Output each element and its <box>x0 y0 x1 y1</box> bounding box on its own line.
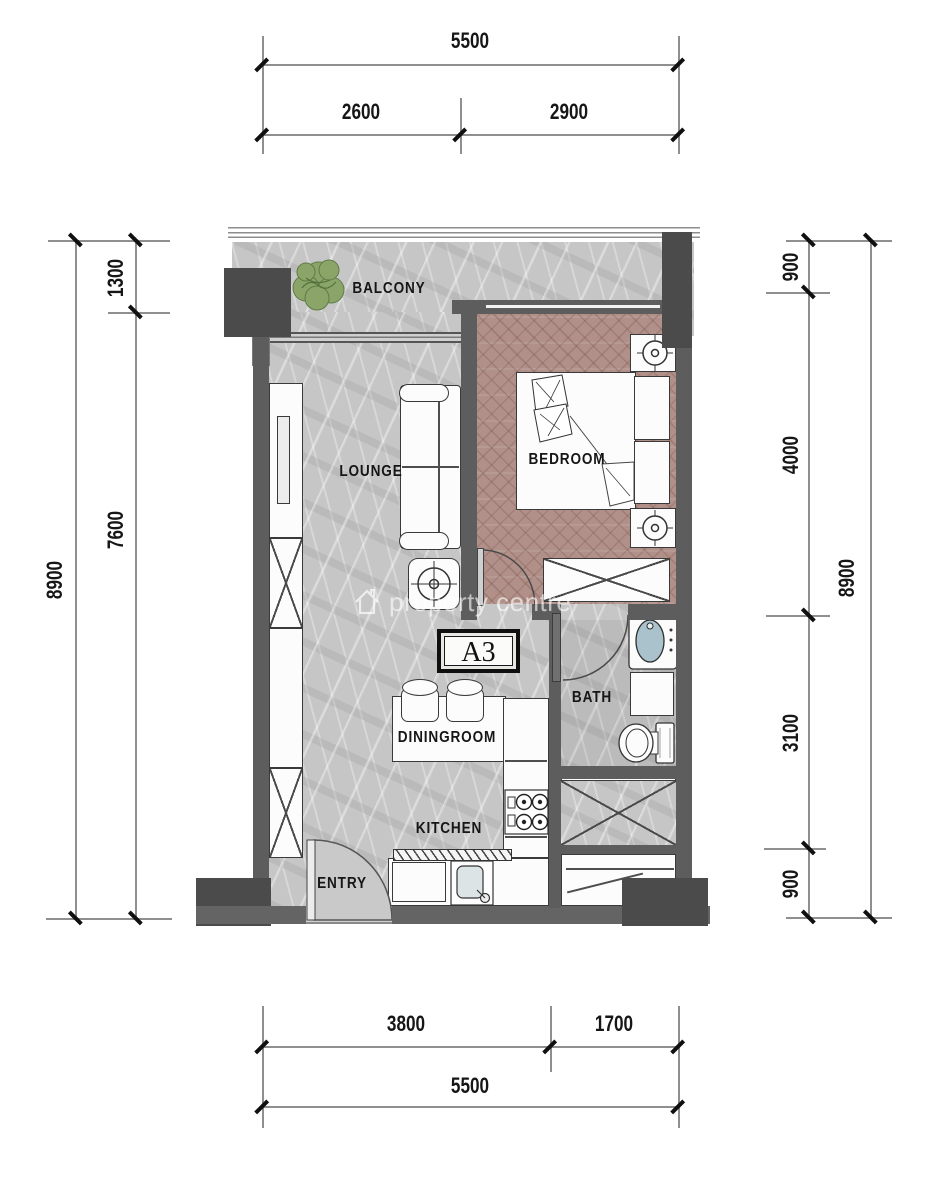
balcony-railing <box>228 227 700 241</box>
wall <box>549 845 676 854</box>
window-line <box>486 305 660 308</box>
dim-label-right-seg4: 900 <box>778 845 800 923</box>
dim-label-right-seg2: 4000 <box>778 416 800 494</box>
floor-plan-canvas: 5500 2600 2900 3800 1700 5500 8900 1300 … <box>0 0 940 1200</box>
dim-extension-line <box>786 240 892 242</box>
bed-linen-art <box>516 372 636 510</box>
house-icon <box>352 586 382 618</box>
room-label-kitchen: KITCHEN <box>373 820 526 838</box>
room-label-entry: ENTRY <box>266 875 419 893</box>
dim-extension-line <box>262 1006 264 1128</box>
dim-label-bottom-total: 5500 <box>431 1073 509 1095</box>
dim-label-right-total: 8900 <box>834 539 856 617</box>
dim-label-right-seg3: 3100 <box>778 694 800 772</box>
dim-extension-line <box>550 1006 552 1072</box>
kitchen-sink <box>450 860 494 906</box>
sliding-door-track <box>566 868 674 870</box>
dim-line-bottom-total <box>262 1106 678 1108</box>
room-label-bath: BATH <box>516 689 669 707</box>
dim-label-right-seg1: 900 <box>778 228 800 306</box>
storage-cabinet <box>269 628 303 768</box>
tv-screen <box>277 416 290 504</box>
dim-extension-line <box>678 1006 680 1128</box>
watermark-text: property centre <box>389 587 571 618</box>
dim-line-left-total <box>75 240 77 918</box>
wall <box>253 337 269 882</box>
sofa-armrest <box>399 384 449 402</box>
counter-divider <box>505 760 547 762</box>
column <box>224 268 291 337</box>
dim-label-top-seg1: 2600 <box>322 99 400 121</box>
storage-cabinet <box>269 768 303 858</box>
dim-label-bottom-seg1: 3800 <box>367 1011 445 1033</box>
balcony-sliding-door <box>266 332 462 343</box>
dim-label-left-total: 8900 <box>42 541 64 619</box>
unit-label: A3 <box>444 636 513 666</box>
wall <box>549 766 676 779</box>
bath-door-leaf <box>552 613 561 682</box>
dish-rack <box>393 849 512 861</box>
column <box>662 232 692 348</box>
dim-label-left-seg2: 7600 <box>103 491 125 569</box>
room-label-bedroom: BEDROOM <box>491 451 644 469</box>
room-label-dining: DININGROOM <box>371 729 524 747</box>
storage-area-hatch <box>561 781 676 845</box>
wall <box>461 302 477 620</box>
dim-extension-line <box>786 917 892 919</box>
dining-stool <box>401 688 439 722</box>
dim-line-right-total <box>870 240 872 917</box>
dim-line-top-segments <box>262 134 678 136</box>
watermark: property centre <box>352 586 571 618</box>
dim-extension-line <box>460 98 462 154</box>
pillow <box>634 376 670 440</box>
wall <box>628 604 676 620</box>
dim-extension-line <box>46 918 172 920</box>
toilet <box>616 720 678 766</box>
column <box>622 878 708 926</box>
wall <box>676 300 692 884</box>
dim-label-top-seg2: 2900 <box>530 99 608 121</box>
unit-badge: A3 <box>437 629 520 673</box>
ceiling-lamp-symbol <box>637 510 673 546</box>
storage-cabinet <box>269 538 303 628</box>
sofa-armrest <box>399 532 449 550</box>
dim-label-left-seg1: 1300 <box>103 239 125 317</box>
dim-label-bottom-seg2: 1700 <box>575 1011 653 1033</box>
dim-label-top-total: 5500 <box>431 28 509 50</box>
dim-extension-line <box>766 615 830 617</box>
bath-door-swing <box>561 613 628 682</box>
bathroom-sink <box>628 612 678 670</box>
room-label-balcony: BALCONY <box>313 280 466 298</box>
dim-line-left-segments <box>135 240 137 918</box>
room-label-lounge: LOUNGE <box>295 463 448 481</box>
dim-line-right-segments <box>808 240 810 917</box>
dining-stool <box>446 688 484 722</box>
dim-line-top-total <box>262 64 678 66</box>
dim-line-bottom-segments <box>262 1046 678 1048</box>
